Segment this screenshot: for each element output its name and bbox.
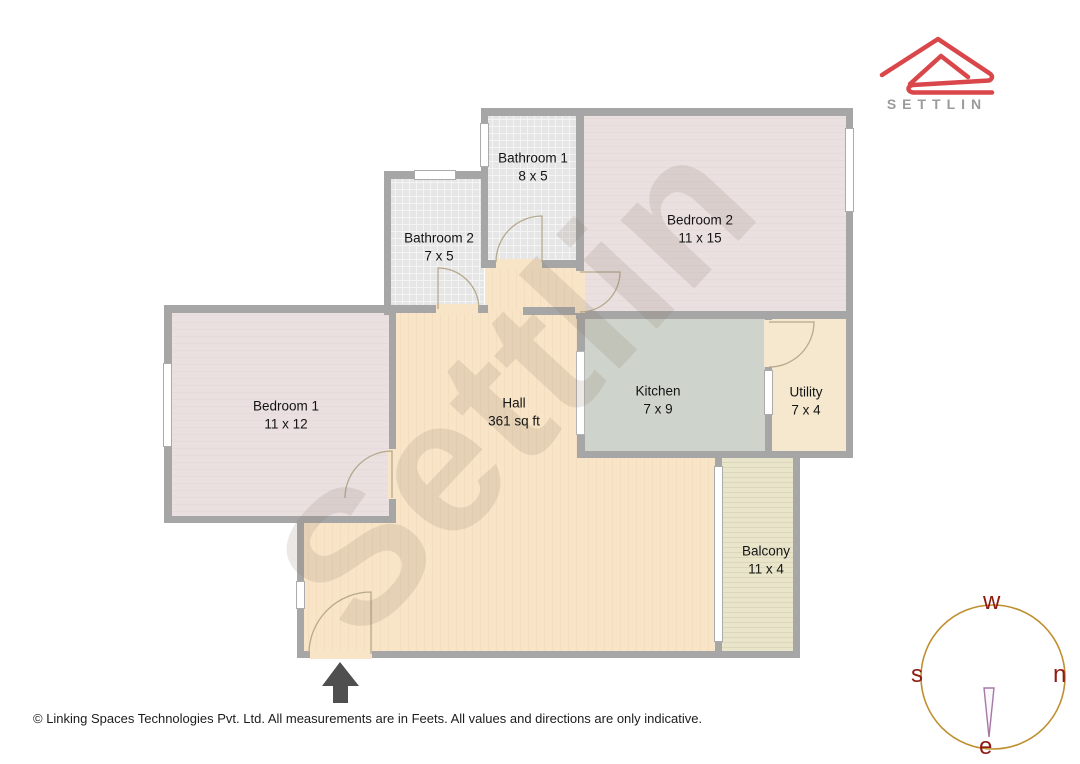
footer-disclaimer: © Linking Spaces Technologies Pvt. Ltd. … xyxy=(33,711,702,726)
room-name: Bedroom 1 xyxy=(253,397,319,415)
room-dims: 11 x 4 xyxy=(742,560,790,578)
entrance-arrow-icon xyxy=(316,660,366,708)
room-name: Hall xyxy=(488,394,540,412)
room-name: Kitchen xyxy=(635,382,680,400)
room-dims: 11 x 15 xyxy=(667,229,733,247)
brand-wordmark: SETTLIN xyxy=(878,96,996,112)
room-label-kitchen: Kitchen 7 x 9 xyxy=(635,382,680,417)
compass-north-label: n xyxy=(1053,661,1066,689)
room-dims: 11 x 12 xyxy=(253,415,319,433)
compass-west-label: w xyxy=(983,588,1000,616)
compass-ring xyxy=(915,595,1075,760)
settlin-logo-icon xyxy=(878,33,996,95)
room-name: Bedroom 2 xyxy=(667,211,733,229)
room-label-bedroom1: Bedroom 1 11 x 12 xyxy=(253,397,319,432)
floor-plan-page: Settlin Bathroom 1 8 x 5 Bathroom 2 7 x … xyxy=(0,0,1080,764)
room-label-bathroom2: Bathroom 2 7 x 5 xyxy=(404,229,474,264)
room-name: Utility xyxy=(790,383,823,401)
room-name: Balcony xyxy=(742,542,790,560)
room-dims: 7 x 5 xyxy=(404,247,474,265)
room-dims: 361 sq ft xyxy=(488,412,540,430)
room-label-hall: Hall 361 sq ft xyxy=(488,394,540,429)
room-name: Bathroom 1 xyxy=(498,149,568,167)
compass-south-label: s xyxy=(911,661,923,689)
room-label-balcony: Balcony 11 x 4 xyxy=(742,542,790,577)
room-label-utility: Utility 7 x 4 xyxy=(790,383,823,418)
compass-east-label: e xyxy=(979,733,992,761)
room-dims: 8 x 5 xyxy=(498,167,568,185)
room-label-bathroom1: Bathroom 1 8 x 5 xyxy=(498,149,568,184)
room-label-bedroom2: Bedroom 2 11 x 15 xyxy=(667,211,733,246)
room-dims: 7 x 4 xyxy=(790,401,823,419)
room-name: Bathroom 2 xyxy=(404,229,474,247)
room-dims: 7 x 9 xyxy=(635,400,680,418)
